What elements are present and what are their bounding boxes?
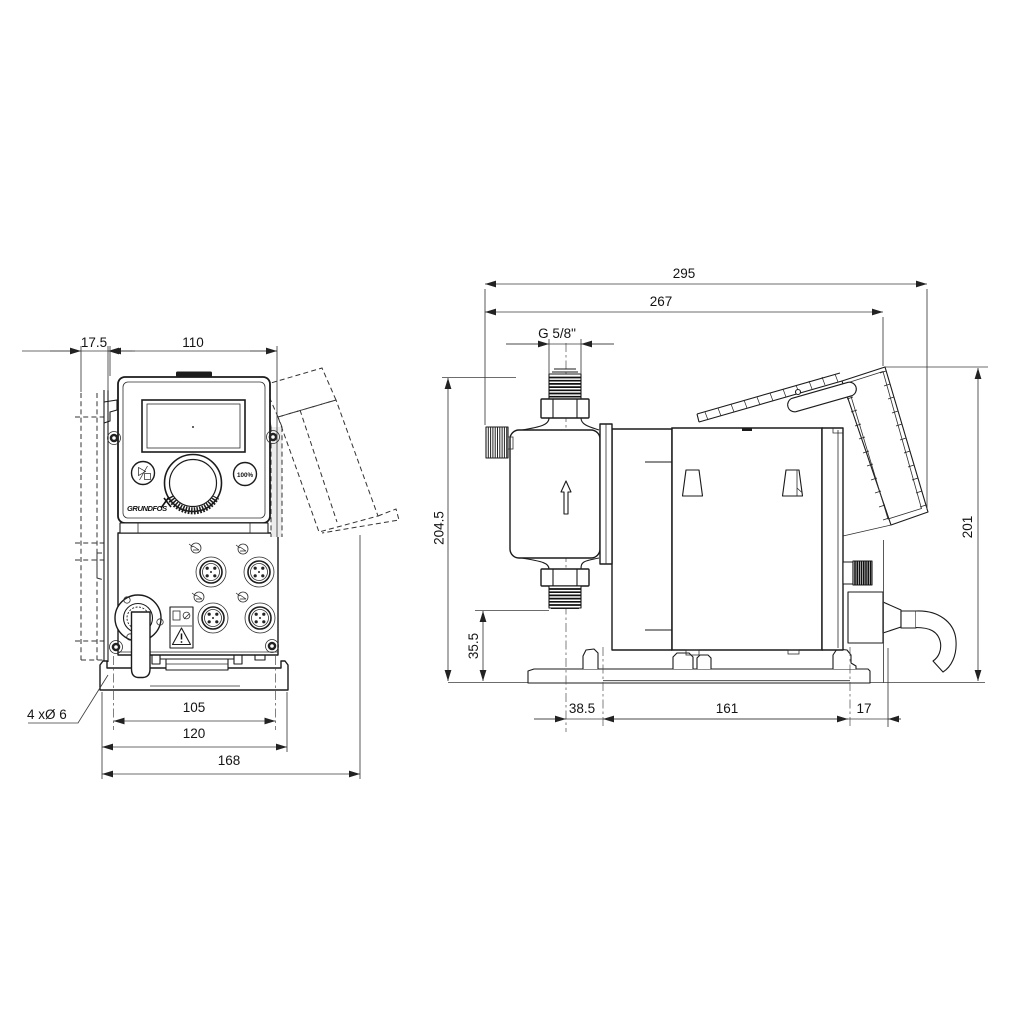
bracket-hook-mid [97, 553, 104, 580]
bracket-dashed-edges [81, 393, 97, 660]
mains-cable [916, 611, 956, 672]
cable-gland-body [848, 592, 883, 643]
dimensional-drawing: 100% GRUNDFOS 17.5 110 105 [0, 0, 1024, 1024]
thread-cap [552, 369, 578, 372]
dim-110-label: 110 [182, 335, 204, 350]
rear-connections [843, 561, 956, 672]
control-cube-phantom [264, 368, 399, 537]
connector-port [244, 557, 274, 587]
wall-bracket-phantom [75, 390, 117, 662]
dim-120-label: 120 [183, 726, 206, 741]
dim-295-label: 295 [673, 266, 696, 281]
stub-thread [853, 561, 872, 585]
thread-hatch [549, 378, 581, 397]
base-clip-left [583, 649, 598, 669]
bracket-bottom-edge [843, 525, 891, 536]
hundred-percent-label: 100% [237, 472, 254, 479]
phantom-top-face [264, 368, 336, 417]
vent-knurl [488, 427, 506, 458]
bracket-hole [796, 390, 801, 395]
dim-161-label: 161 [716, 701, 739, 716]
head-body [510, 430, 600, 558]
body-main-block [672, 428, 822, 650]
exclamation-dot [181, 641, 183, 643]
body-top-tick [742, 428, 752, 431]
base-clip-right [833, 649, 856, 669]
dim-204-5-label: 204.5 [432, 511, 447, 545]
connector-port [245, 603, 275, 633]
mounting-holes-label: 4 xØ 6 [27, 707, 67, 722]
lcd-cursor-dot [192, 426, 194, 428]
dim-38-5-label: 38.5 [569, 701, 595, 716]
suction-connection [522, 558, 599, 609]
bracket-dashed-ticks [75, 417, 104, 660]
discharge-connection [522, 369, 599, 430]
front-view: 100% GRUNDFOS 17.5 110 105 [22, 335, 399, 779]
hundred-percent-button[interactable]: 100% [234, 463, 257, 486]
pump-body-side [612, 428, 843, 655]
dim-201-label: 201 [960, 516, 975, 539]
power-cable [132, 612, 151, 678]
bracket-front-edge [104, 390, 108, 662]
click-wheel[interactable] [165, 455, 222, 512]
neck [522, 418, 599, 430]
union-nut-bottom [541, 569, 589, 586]
control-panel: 100% GRUNDFOS [108, 372, 280, 534]
body-rear-panel [822, 428, 843, 650]
rail-lower [166, 659, 228, 670]
warning-label [170, 607, 193, 648]
dim-thread-label: G 5/8" [538, 326, 576, 341]
base-bumps [673, 653, 711, 669]
dim-105-label: 105 [183, 700, 206, 715]
dim-17-5-label: 17.5 [81, 335, 107, 350]
brand-wordmark: GRUNDFOS [127, 504, 167, 513]
dim-168-label: 168 [218, 753, 241, 768]
lock-tab-rear [783, 470, 803, 496]
start-stop-button[interactable] [132, 462, 155, 485]
cable-gland-cone [883, 602, 901, 633]
lock-tab-front [683, 470, 703, 496]
bracket-hook-top [104, 400, 117, 423]
phantom-front-face [278, 400, 378, 532]
phantom-inner-edge [300, 410, 337, 522]
dim-267-label: 267 [650, 294, 673, 309]
lcd-display [142, 400, 245, 452]
connector-port [198, 603, 228, 633]
neck-bottom [522, 558, 599, 569]
cable-gland-tube [901, 611, 916, 628]
dim-17-label: 17 [856, 701, 871, 716]
stub-hex [843, 562, 853, 584]
side-view: 295 267 G 5/8" 204.5 35.5 201 38. [432, 266, 989, 732]
technical-drawing-page: 100% GRUNDFOS 17.5 110 105 [0, 0, 1024, 1024]
dim-35-5-label: 35.5 [466, 633, 481, 659]
union-nut [541, 399, 589, 418]
panel-lip [120, 523, 268, 533]
connector-port [196, 557, 226, 587]
vent-valve[interactable] [486, 427, 513, 458]
